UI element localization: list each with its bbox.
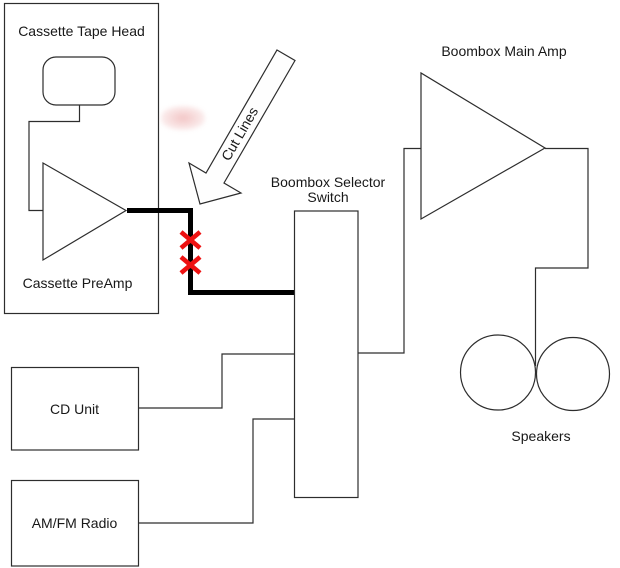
speaker-left — [461, 335, 536, 410]
selector-switch-label: Boombox Selector Switch — [258, 175, 398, 205]
cd-to-selector-wire — [139, 354, 295, 408]
boombox-wiring-diagram: Cassette Tape Head Cassette PreAmp Cut L… — [0, 0, 620, 568]
tape-head-symbol — [43, 57, 115, 105]
radio-to-selector-wire — [139, 419, 295, 523]
cassette-preamp-triangle — [43, 163, 126, 260]
am-fm-radio-label: AM/FM Radio — [11, 516, 138, 531]
cassette-tape-head-label: Cassette Tape Head — [4, 24, 159, 39]
amp-to-speakers-wire — [536, 149, 589, 367]
selector-switch-label-line2: Switch — [307, 189, 348, 205]
cassette-preamp-label: Cassette PreAmp — [4, 276, 151, 291]
faint-artifact — [161, 106, 205, 130]
cassette-tape-head-box — [5, 4, 159, 314]
selector-switch-box — [295, 211, 359, 498]
main-amp-triangle — [421, 73, 545, 219]
cd-unit-label: CD Unit — [11, 402, 138, 417]
preamp-to-selector-wire — [127, 211, 295, 293]
speaker-right — [537, 338, 610, 411]
selector-switch-label-line1: Boombox Selector — [271, 174, 385, 190]
speakers-label: Speakers — [461, 429, 620, 444]
main-amp-label: Boombox Main Amp — [424, 44, 584, 59]
